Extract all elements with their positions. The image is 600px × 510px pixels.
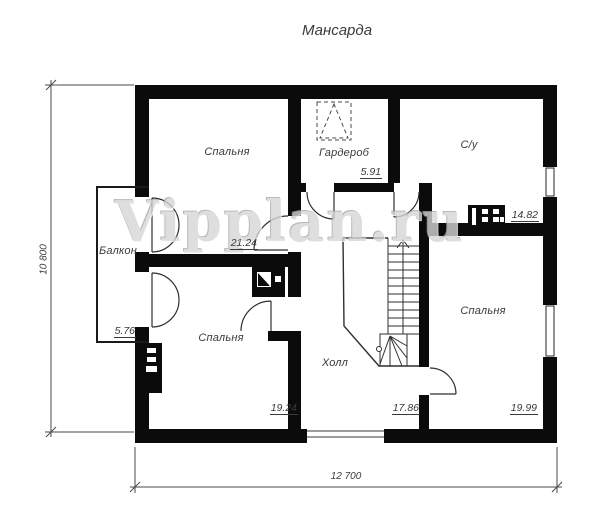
dimension-height: 10 800 <box>39 230 50 290</box>
window-bathroom <box>546 168 554 196</box>
room-label-bathroom: С/у <box>414 139 524 151</box>
door-bedroom-right <box>430 368 456 394</box>
room-label-bedroom-bottomleft: Спальня <box>166 332 276 344</box>
room-label-bedroom-right: Спальня <box>428 305 538 317</box>
room-label-hall: Холл <box>280 357 390 369</box>
wall-segment <box>288 267 301 297</box>
wall-segment <box>419 395 429 429</box>
area-value: 21.24 <box>230 237 258 250</box>
flue-block-left-wall <box>137 343 162 393</box>
area-value: 19.24 <box>270 402 298 415</box>
wall-segment <box>543 99 557 167</box>
wall-segment <box>135 85 557 99</box>
area-wardrobe: 5.91 <box>360 166 382 178</box>
balcony-door-bottom <box>152 273 179 327</box>
area-value: 17.86 <box>392 402 420 415</box>
room-label-bedroom-topleft: Спальня <box>172 146 282 158</box>
area-value: 5.76 <box>114 325 136 338</box>
room-label-balcony: Балкон <box>63 245 173 257</box>
flue-block-bedroom <box>252 267 285 297</box>
area-bathroom: 14.82 <box>511 209 539 221</box>
area-value: 19.99 <box>510 402 538 415</box>
area-bedroom-right: 19.99 <box>510 402 538 414</box>
dim-line-bottom <box>130 447 562 493</box>
window-hall <box>307 431 384 437</box>
area-value: 14.82 <box>511 209 539 222</box>
plan-title: Мансарда <box>237 22 437 39</box>
wall-segment <box>543 197 557 305</box>
area-bedroom-topleft: 21.24 <box>230 237 258 249</box>
attic-hatch-symbol <box>317 102 351 140</box>
room-label-wardrobe: Гардероб <box>289 147 399 159</box>
window-bedroom-right <box>546 306 554 356</box>
wall-segment <box>384 429 557 443</box>
area-bedroom-bottomleft: 19.24 <box>270 402 298 414</box>
area-hall: 17.86 <box>392 402 420 414</box>
area-value: 5.91 <box>360 166 382 179</box>
door-bedroom-bottomleft <box>241 301 271 331</box>
wall-segment <box>388 99 400 183</box>
floor-plan: Vipplan.ru Мансарда Спальня Гардероб С/у… <box>0 0 600 510</box>
dimension-width: 12 700 <box>316 471 376 482</box>
stair-post <box>377 347 382 352</box>
wall-segment <box>543 357 557 429</box>
wall-segment <box>135 429 307 443</box>
area-balcony: 5.76 <box>114 325 136 337</box>
